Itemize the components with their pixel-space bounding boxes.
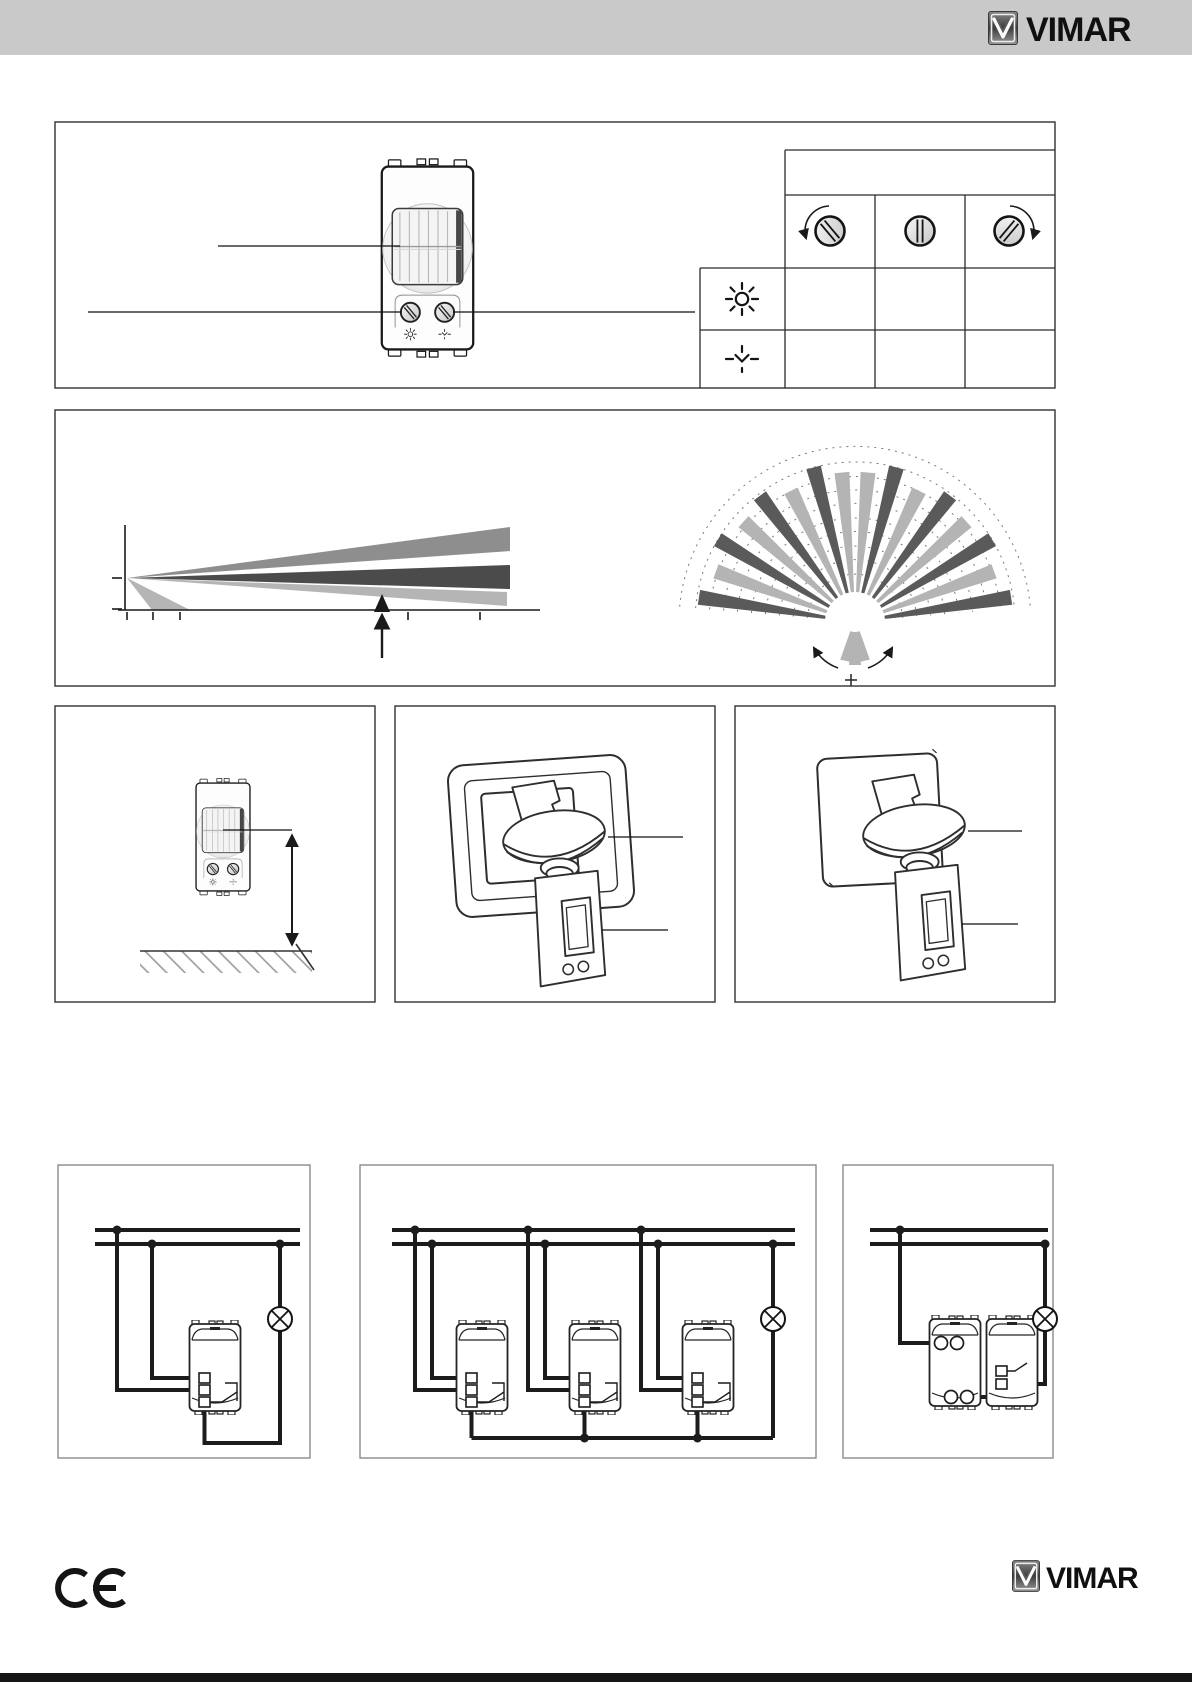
fan-adjust-arrow-right <box>868 648 892 668</box>
mount-height-arrow <box>374 594 390 658</box>
side-view-diagram <box>112 525 540 658</box>
header-brand-wordmark: VIMAR <box>1026 11 1131 49</box>
wiring-diagram-single <box>58 1165 310 1458</box>
flush-mount-sensor-panel <box>395 706 715 1002</box>
footer-bar <box>0 1673 1192 1682</box>
adjustment-table <box>700 150 1055 388</box>
ce-mark-icon: CE <box>58 1571 124 1605</box>
top-view-fan-diagram <box>680 446 1031 686</box>
header-vimar-logo: VIMAR <box>989 11 1132 49</box>
product-overview-panel <box>55 122 1055 388</box>
w3-module-2 <box>987 1315 1038 1410</box>
side-view-beams <box>127 527 510 610</box>
w2-sensor-module-3 <box>683 1320 734 1415</box>
fan-adjust-arrow-left <box>814 648 838 668</box>
plus-marker <box>845 674 857 686</box>
w1-terminals <box>199 1373 210 1407</box>
sun-row-icon <box>726 283 758 315</box>
w2-sensor-module-2 <box>570 1320 621 1415</box>
knob-position-icons <box>805 206 1034 251</box>
w2-sensor-module-1 <box>457 1320 508 1415</box>
sensor-module-small-illustration <box>196 779 250 896</box>
floor-hatch <box>140 944 314 973</box>
sensor-module-front-illustration <box>382 159 473 357</box>
footer-vimar-logo: VIMAR <box>1012 1561 1139 1595</box>
lamp-icon <box>268 1307 292 1331</box>
w1-sensor-module <box>190 1320 241 1415</box>
lamp-icon-3 <box>1033 1307 1057 1331</box>
wiring-diagram-two-module <box>843 1165 1057 1458</box>
install-height-panel <box>55 706 375 1002</box>
header-bar: VIMAR <box>0 0 1192 55</box>
knob-ccw-icon <box>810 211 851 252</box>
fan-rear-beams <box>840 631 870 665</box>
lamp-icon-2 <box>761 1307 785 1331</box>
fan-beams <box>698 466 1012 619</box>
twilight-row-icon <box>726 346 758 372</box>
instruction-sheet-page: VIMAR <box>0 0 1192 1685</box>
vimar-emblem-icon <box>989 12 1018 45</box>
detection-range-panel <box>55 410 1055 686</box>
knob-cw-icon <box>989 211 1030 252</box>
knob-mid-icon <box>906 217 935 246</box>
wiring-diagram-parallel <box>360 1165 816 1458</box>
surface-mount-sensor-panel <box>735 706 1055 1002</box>
footer-vimar-emblem-icon <box>1012 1561 1039 1592</box>
fan-range-arcs <box>680 446 1031 617</box>
footer-brand-wordmark: VIMAR <box>1046 1562 1139 1595</box>
sheet-artwork: VIMAR <box>0 0 1192 1685</box>
